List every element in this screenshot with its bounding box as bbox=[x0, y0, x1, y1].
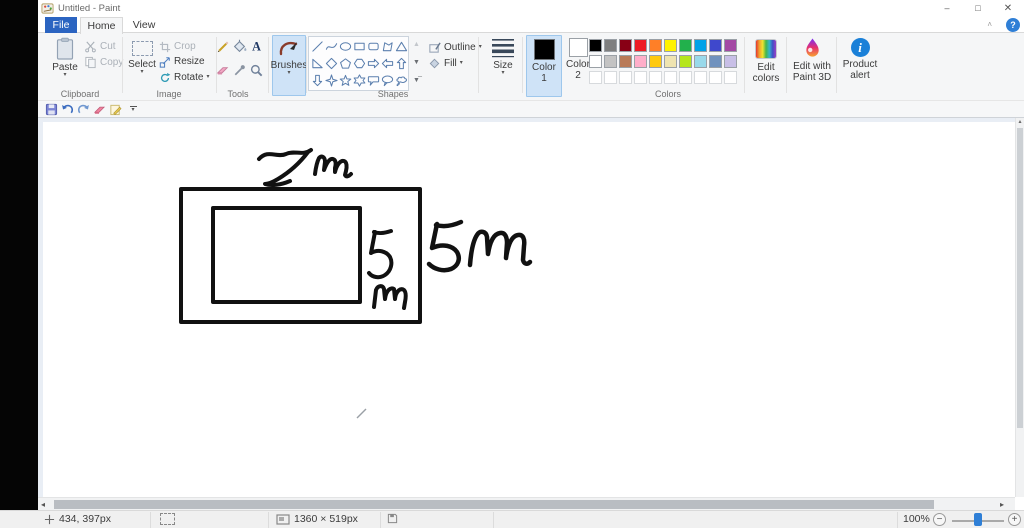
copy-label: Copy bbox=[100, 57, 123, 68]
svg-text:A: A bbox=[252, 39, 261, 53]
line-thickness-icon bbox=[491, 36, 515, 60]
palette-swatch[interactable] bbox=[649, 39, 662, 52]
image-size-indicator: 1360 × 519px bbox=[276, 513, 358, 525]
save-icon[interactable] bbox=[44, 102, 58, 116]
palette-swatch[interactable] bbox=[634, 39, 647, 52]
undo-icon[interactable] bbox=[60, 102, 74, 116]
resize-button[interactable]: Resize bbox=[159, 54, 205, 69]
shapes-gallery bbox=[308, 36, 409, 91]
brush-icon bbox=[277, 36, 301, 60]
resize-label: Resize bbox=[174, 56, 205, 67]
shape-line-icon[interactable] bbox=[310, 38, 324, 55]
outline-icon bbox=[428, 41, 441, 54]
status-divider bbox=[268, 512, 269, 528]
customize-toolbar-icon[interactable]: ▾ bbox=[126, 102, 140, 116]
dropdown-arrow-icon: ▾ bbox=[460, 61, 463, 66]
paste-button[interactable]: Paste ▾ bbox=[48, 36, 82, 78]
shapes-group-label: Shapes bbox=[338, 89, 448, 99]
shapes-scroll-up-icon[interactable]: ▲ bbox=[411, 36, 422, 54]
edit-with-paint3d-label: Edit with Paint 3D bbox=[790, 61, 834, 83]
shape-arrow-up-icon[interactable] bbox=[394, 55, 408, 72]
shape-cloud-callout-icon[interactable] bbox=[394, 72, 408, 89]
ribbon-tab-row: File Home View ˄ ? bbox=[38, 17, 1024, 33]
shape-arrow-left-icon[interactable] bbox=[380, 55, 394, 72]
palette-swatch[interactable] bbox=[619, 55, 632, 68]
tab-home[interactable]: Home bbox=[80, 17, 123, 34]
edit-colors-button[interactable]: Edit colors bbox=[748, 35, 784, 95]
vertical-scrollbar-thumb[interactable] bbox=[1017, 128, 1023, 428]
maximize-button[interactable]: □ bbox=[963, 0, 993, 17]
palette-swatch[interactable] bbox=[649, 55, 662, 68]
image-size-value: 1360 × 519px bbox=[294, 513, 358, 525]
scroll-left-icon[interactable]: ◂ bbox=[41, 499, 45, 510]
text-tool-icon[interactable]: A bbox=[248, 38, 264, 54]
color2-swatch bbox=[569, 38, 588, 57]
palette-swatch[interactable] bbox=[709, 55, 722, 68]
product-alert-label: Product alert bbox=[840, 59, 880, 81]
fill-label: Fill bbox=[444, 58, 457, 69]
shape-oval-icon[interactable] bbox=[338, 38, 352, 55]
status-divider bbox=[150, 512, 151, 528]
zoom-slider-thumb[interactable] bbox=[974, 513, 982, 526]
shape-triangle-icon[interactable] bbox=[394, 38, 408, 55]
palette-row-2 bbox=[588, 54, 738, 69]
palette-swatch[interactable] bbox=[664, 39, 677, 52]
screen: Untitled - Paint – □ ✕ File Home View ˄ … bbox=[0, 0, 1024, 528]
horizontal-scrollbar[interactable]: ◂ ▸ bbox=[38, 497, 1015, 510]
palette-swatch[interactable] bbox=[604, 39, 617, 52]
group-divider bbox=[522, 37, 523, 93]
group-divider bbox=[268, 37, 269, 93]
palette-swatch[interactable] bbox=[619, 39, 632, 52]
tab-view[interactable]: View bbox=[127, 17, 161, 33]
shapes-scroll-down-icon[interactable]: ▼ bbox=[411, 54, 422, 72]
ribbon: Paste ▾ Cut Copy Clipboard bbox=[38, 33, 1024, 101]
edit-document-icon[interactable] bbox=[108, 102, 122, 116]
palette-swatch[interactable] bbox=[709, 39, 722, 52]
crop-icon bbox=[159, 41, 171, 53]
color1-label: Color 1 bbox=[529, 62, 559, 84]
selection-size-icon bbox=[160, 513, 175, 525]
group-divider bbox=[478, 37, 479, 93]
group-divider bbox=[836, 37, 837, 93]
shape-diamond-icon[interactable] bbox=[324, 55, 338, 72]
scroll-right-icon[interactable]: ▸ bbox=[1000, 499, 1004, 510]
status-bar: 434, 397px 1360 × 519px 100% bbox=[0, 510, 1024, 528]
shape-pentagon-icon[interactable] bbox=[338, 55, 352, 72]
shapes-more-icon[interactable]: ▼̅ bbox=[411, 72, 422, 90]
crop-button[interactable]: Crop bbox=[159, 39, 196, 54]
clipboard-icon bbox=[55, 36, 75, 62]
outline-button[interactable]: Outline ▾ bbox=[428, 40, 482, 55]
palette-swatch[interactable] bbox=[724, 55, 737, 68]
palette-row-1 bbox=[588, 38, 738, 53]
tab-file[interactable]: File bbox=[45, 17, 77, 33]
zoom-in-button[interactable]: + bbox=[1008, 513, 1021, 526]
shape-rounded-callout-icon[interactable] bbox=[366, 72, 380, 89]
vertical-scrollbar[interactable]: ▴ bbox=[1015, 118, 1024, 497]
palette-empty-slot[interactable] bbox=[664, 71, 677, 84]
canvas-area bbox=[38, 118, 1015, 497]
colors-group-label: Colors bbox=[598, 89, 738, 99]
color1-button[interactable]: Color 1 bbox=[526, 35, 562, 97]
redo-icon[interactable] bbox=[76, 102, 90, 116]
eraser-tool-icon[interactable] bbox=[214, 62, 230, 78]
color1-swatch bbox=[534, 39, 555, 60]
disk-icon bbox=[387, 513, 398, 524]
zoom-level: 100% bbox=[903, 513, 930, 525]
palette-empty-slot[interactable] bbox=[589, 71, 602, 84]
copy-button[interactable]: Copy bbox=[84, 55, 123, 70]
dropdown-arrow-icon: ▾ bbox=[479, 45, 482, 50]
size-button[interactable]: Size ▾ bbox=[486, 36, 520, 76]
tools-group-label: Tools bbox=[210, 89, 266, 99]
close-button[interactable]: ✕ bbox=[993, 0, 1023, 17]
palette-empty-slot[interactable] bbox=[694, 71, 707, 84]
group-divider bbox=[786, 37, 787, 93]
collapse-ribbon-icon[interactable]: ˄ bbox=[987, 20, 992, 29]
palette-row-3 bbox=[588, 70, 738, 85]
palette-swatch[interactable] bbox=[694, 39, 707, 52]
magnifier-tool-icon[interactable] bbox=[248, 62, 264, 78]
cursor-position-indicator: 434, 397px bbox=[44, 513, 111, 525]
title-bar[interactable]: Untitled - Paint – □ ✕ bbox=[38, 0, 1024, 17]
palette-swatch[interactable] bbox=[724, 39, 737, 52]
status-divider bbox=[493, 512, 494, 528]
palette-swatch[interactable] bbox=[589, 55, 602, 68]
resize-icon bbox=[159, 56, 171, 68]
cut-button[interactable]: Cut bbox=[84, 39, 116, 54]
quick-access-toolbar: ▾ bbox=[38, 101, 1024, 118]
palette-swatch[interactable] bbox=[604, 55, 617, 68]
dropdown-arrow-icon: ▾ bbox=[63, 73, 66, 78]
selection-size-indicator bbox=[160, 513, 179, 525]
shape-arrow-down-icon[interactable] bbox=[310, 72, 324, 89]
shape-rectangle-icon[interactable] bbox=[352, 38, 366, 55]
cursor-position-value: 434, 397px bbox=[59, 513, 111, 525]
palette-swatch[interactable] bbox=[679, 55, 692, 68]
group-divider bbox=[306, 37, 307, 93]
scissors-icon bbox=[84, 40, 97, 53]
paint3d-drop-icon bbox=[803, 37, 822, 60]
palette-swatch[interactable] bbox=[634, 55, 647, 68]
drawing-canvas[interactable] bbox=[43, 122, 1015, 497]
rotate-button[interactable]: Rotate ▾ bbox=[159, 70, 209, 85]
palette-empty-slot[interactable] bbox=[649, 71, 662, 84]
fill-button[interactable]: Fill ▾ bbox=[428, 56, 463, 71]
status-divider bbox=[897, 512, 898, 528]
group-divider bbox=[744, 37, 745, 93]
crosshair-icon bbox=[44, 514, 55, 525]
crop-label: Crop bbox=[174, 41, 196, 52]
shape-curve-icon[interactable] bbox=[324, 38, 338, 55]
shape-right-triangle-icon[interactable] bbox=[310, 55, 324, 72]
paint-app-icon bbox=[41, 2, 54, 15]
select-button[interactable]: Select ▾ bbox=[126, 36, 158, 75]
dropdown-arrow-icon: ▾ bbox=[501, 71, 504, 76]
status-divider bbox=[380, 512, 381, 528]
dropdown-arrow-icon: ▾ bbox=[206, 75, 209, 80]
palette-swatch[interactable] bbox=[679, 39, 692, 52]
edit-colors-label: Edit colors bbox=[748, 62, 784, 84]
image-group-label: Image bbox=[124, 89, 214, 99]
brushes-button[interactable]: Brushes ▾ bbox=[272, 35, 306, 96]
group-divider bbox=[122, 37, 123, 93]
fill-with-color-tool-icon[interactable] bbox=[231, 38, 247, 54]
pencil-tool-icon[interactable] bbox=[214, 38, 230, 54]
window-title: Untitled - Paint bbox=[58, 3, 120, 14]
palette-swatch[interactable] bbox=[664, 55, 677, 68]
palette-empty-slot[interactable] bbox=[709, 71, 722, 84]
palette-empty-slot[interactable] bbox=[619, 71, 632, 84]
product-alert-button[interactable]: i Product alert bbox=[840, 35, 880, 95]
rotate-icon bbox=[159, 72, 171, 84]
minimize-button[interactable]: – bbox=[932, 0, 962, 17]
shape-oval-callout-icon[interactable] bbox=[380, 72, 394, 89]
dropdown-arrow-icon: ▾ bbox=[287, 71, 290, 76]
zoom-level-value: 100% bbox=[903, 513, 930, 525]
palette-empty-slot[interactable] bbox=[724, 71, 737, 84]
shape-arrow-right-icon[interactable] bbox=[366, 55, 380, 72]
zoom-out-button[interactable]: − bbox=[933, 513, 946, 526]
shape-polygon-icon[interactable] bbox=[380, 38, 394, 55]
rotate-label: Rotate bbox=[174, 72, 203, 83]
outline-label: Outline bbox=[444, 42, 476, 53]
fill-icon bbox=[428, 57, 441, 70]
palette-empty-slot[interactable] bbox=[634, 71, 647, 84]
horizontal-scrollbar-thumb[interactable] bbox=[54, 500, 934, 509]
paint-window: Untitled - Paint – □ ✕ File Home View ˄ … bbox=[38, 0, 1024, 510]
palette-swatch[interactable] bbox=[694, 55, 707, 68]
eraser-icon[interactable] bbox=[92, 102, 106, 116]
file-size-indicator bbox=[387, 513, 402, 524]
color-picker-tool-icon[interactable] bbox=[231, 62, 247, 78]
copy-icon bbox=[84, 56, 97, 69]
dropdown-arrow-icon: ▾ bbox=[140, 70, 143, 75]
image-size-icon bbox=[276, 514, 290, 525]
scroll-up-icon[interactable]: ▴ bbox=[1016, 118, 1024, 126]
shape-hexagon-icon[interactable] bbox=[352, 55, 366, 72]
shape-four-point-star-icon[interactable] bbox=[324, 72, 338, 89]
clipboard-group-label: Clipboard bbox=[38, 89, 122, 99]
shape-rounded-rectangle-icon[interactable] bbox=[366, 38, 380, 55]
selection-rectangle-icon bbox=[132, 41, 153, 56]
palette-swatch[interactable] bbox=[589, 39, 602, 52]
color-palette-icon bbox=[755, 39, 777, 59]
help-icon[interactable]: ? bbox=[1006, 18, 1020, 32]
edit-with-paint3d-button[interactable]: Edit with Paint 3D bbox=[790, 35, 834, 95]
palette-empty-slot[interactable] bbox=[679, 71, 692, 84]
info-icon: i bbox=[851, 38, 870, 57]
shape-six-point-star-icon[interactable] bbox=[352, 72, 366, 89]
cut-label: Cut bbox=[100, 41, 116, 52]
shape-five-point-star-icon[interactable] bbox=[338, 72, 352, 89]
palette-empty-slot[interactable] bbox=[604, 71, 617, 84]
